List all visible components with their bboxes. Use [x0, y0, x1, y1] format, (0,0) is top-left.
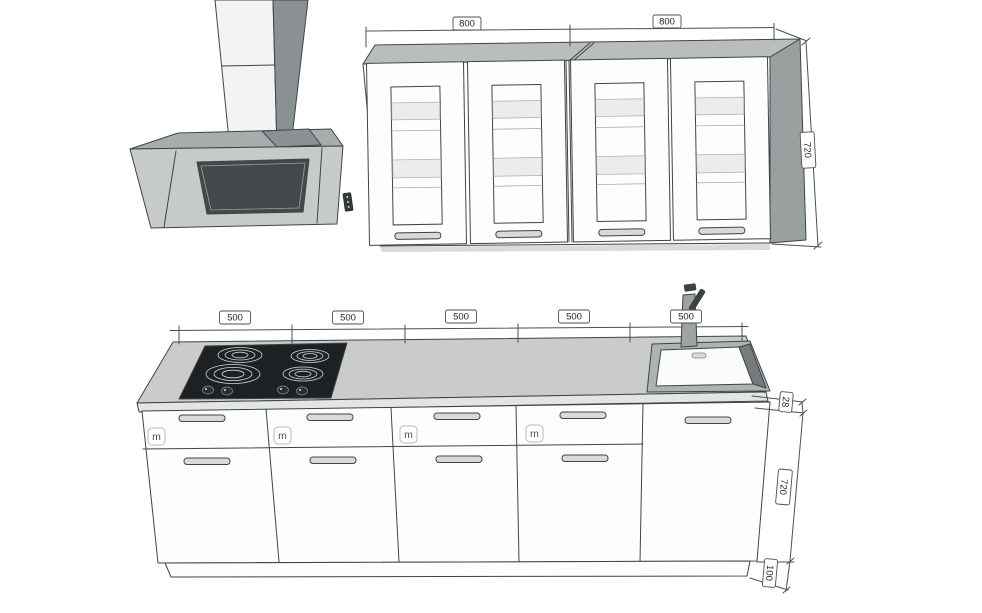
door-handle	[395, 232, 441, 239]
knob	[203, 386, 214, 394]
door-handle	[699, 227, 745, 234]
glass-shelf-band	[696, 97, 744, 115]
dim-label-base-width-5: 500	[671, 310, 702, 323]
glass-shelf-band	[493, 100, 541, 118]
glass-shelf-band	[596, 99, 644, 117]
dim-line	[790, 413, 803, 561]
svg-text:800: 800	[659, 17, 675, 28]
dim-line	[802, 402, 803, 413]
base-run: m m m m	[137, 336, 770, 577]
svg-text:100: 100	[763, 565, 775, 582]
svg-text:m: m	[404, 429, 413, 441]
drawer-handle	[179, 415, 225, 422]
dim-label-wall-width-2: 800	[653, 15, 681, 28]
base-door-handle	[436, 456, 482, 463]
dim-label-wall-width-1: 800	[453, 17, 481, 30]
glass-shelf-band	[392, 102, 440, 120]
sink-door-handle	[685, 417, 731, 424]
dim-line	[786, 561, 790, 591]
dim-label-base-width-3: 500	[446, 310, 477, 323]
door-handle	[496, 230, 542, 237]
glass-shelf-band	[597, 156, 645, 175]
knob	[297, 387, 308, 395]
wall-cabinet-door	[670, 57, 770, 241]
dim-label-plinth-height: 100	[762, 558, 777, 587]
range-hood	[130, 129, 353, 228]
svg-text:500: 500	[227, 313, 243, 324]
kitchen-elevation-canvas: 800 800 720	[0, 0, 982, 613]
base-door-handle	[310, 457, 356, 464]
base-cabinet-front	[142, 402, 770, 563]
svg-text:m: m	[152, 431, 161, 443]
door-handle	[599, 229, 645, 236]
hood-controls	[343, 193, 353, 212]
chimney	[215, 0, 308, 150]
module-badge: m	[400, 426, 417, 443]
svg-text:720: 720	[777, 479, 789, 496]
sink-overflow	[692, 353, 706, 358]
svg-text:500: 500	[340, 313, 356, 324]
base-door-handle	[562, 455, 608, 462]
dim-extension	[772, 244, 821, 247]
glass-shelf-band	[697, 154, 745, 173]
knob	[222, 387, 233, 395]
dim-plinth-height: 100	[750, 558, 790, 593]
chimney-side-face	[273, 0, 308, 147]
dim-labels-base-widths: 500 500 500 500 500	[220, 310, 702, 324]
plinth	[165, 561, 750, 577]
chimney-front-face	[215, 0, 277, 150]
svg-text:800: 800	[459, 19, 475, 30]
kitchen-elevation-drawing: 800 800 720	[0, 0, 982, 613]
wall-cabinet-door	[367, 62, 467, 246]
dim-label-base-height: 720	[776, 469, 793, 505]
dim-label-base-width-2: 500	[333, 311, 364, 324]
svg-text:500: 500	[566, 312, 582, 323]
knob	[278, 386, 289, 394]
svg-text:28: 28	[779, 396, 791, 407]
module-badge: m	[526, 425, 543, 442]
wall-cabinet-run	[363, 39, 806, 252]
dim-label-worktop-thickness: 28	[779, 391, 794, 412]
drawer-handle	[560, 412, 606, 419]
sink	[647, 341, 770, 392]
dim-label-base-width-4: 500	[559, 310, 590, 323]
wall-cabinet-door	[467, 60, 567, 244]
module-badge: m	[274, 427, 291, 444]
dim-line	[170, 327, 748, 331]
svg-text:500: 500	[453, 312, 469, 323]
svg-text:m: m	[278, 430, 287, 442]
svg-text:720: 720	[801, 142, 813, 158]
dim-label-wall-height: 720	[800, 132, 816, 169]
glass-shelf-band	[393, 159, 441, 178]
svg-text:m: m	[530, 428, 539, 440]
svg-text:500: 500	[678, 312, 694, 323]
drawer-handle	[307, 414, 353, 421]
drawer-handle	[434, 413, 480, 420]
glass-shelf-band	[494, 157, 542, 176]
hood-screen	[197, 159, 309, 214]
cooktop	[179, 343, 347, 399]
wall-cabinet-door	[570, 58, 670, 242]
module-badge: m	[148, 428, 165, 445]
base-door-handle	[184, 458, 230, 465]
dim-label-base-width-1: 500	[220, 311, 251, 324]
